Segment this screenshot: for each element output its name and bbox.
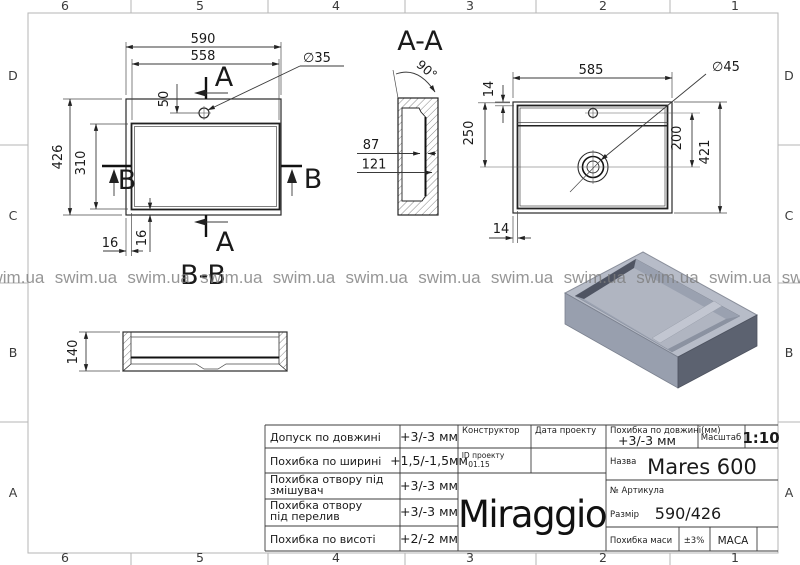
zone-row-label: D	[8, 68, 18, 83]
dim-bottom-drain-dia: ∅45	[712, 60, 740, 75]
mass-label: МАСА	[718, 535, 750, 547]
tolerance-label: під перелив	[270, 510, 340, 523]
section-bb-view: B-B 140	[66, 260, 287, 371]
zone-row-label: A	[9, 485, 18, 500]
section-marker-b-left: B	[118, 165, 137, 196]
section-marker-a-top: A	[215, 62, 234, 93]
drawing-sheet: swim.uaswim.uaswim.uaswim.uaswim.uaswim.…	[0, 0, 800, 565]
dim-bottom-width: 585	[579, 63, 604, 78]
section-aa-view: A-A 90° 87 121	[357, 26, 443, 215]
zone-col-label: 4	[332, 0, 340, 13]
brand-logo: Miraggio	[458, 493, 606, 536]
zone-row-label: C	[785, 208, 794, 223]
dim-bottom-drain-offset: 250	[462, 121, 477, 146]
dim-bb-height: 140	[66, 340, 81, 365]
zone-row-label: D	[784, 68, 794, 83]
dim-aa-121: 121	[362, 158, 387, 173]
tolerance-label: Похибка по висоті	[270, 533, 376, 546]
dim-bottom-rim-top: 14	[482, 81, 497, 98]
zone-col-label: 1	[731, 550, 739, 565]
zone-col-label: 6	[61, 550, 69, 565]
project-id-value: 01.15	[468, 460, 490, 469]
tolerance-label: Допуск по довжині	[270, 431, 381, 444]
size-value: 590/426	[655, 504, 721, 523]
dim-plan-inner-height: 310	[74, 151, 89, 176]
section-marker-b-right: B	[304, 164, 323, 195]
dim-aa-87: 87	[363, 138, 380, 153]
tolerance-value: +1,5/-1,5мм	[390, 453, 468, 468]
zone-col-label: 3	[466, 0, 474, 13]
zone-col-label: 2	[599, 550, 607, 565]
tolerance-value: +3/-3 мм	[400, 429, 458, 444]
zone-col-label: 6	[61, 0, 69, 13]
zone-row-label: A	[785, 485, 794, 500]
dim-plan-inner-width: 558	[191, 49, 216, 64]
dim-bottom-overall-height: 421	[698, 140, 713, 165]
zone-col-label: 2	[599, 0, 607, 13]
drawing-canvas: 6 5 4 3 2 1 6 5 4 3 2 1 D C B A D C B A	[0, 0, 800, 565]
bottom-view: ∅45 585 14 250 200 421	[462, 60, 740, 243]
project-id-label: ID проекту	[462, 451, 505, 460]
size-label: Размір	[610, 510, 639, 520]
zone-row-label: B	[9, 345, 18, 360]
zone-col-label: 4	[332, 550, 340, 565]
zone-col-label: 3	[466, 550, 474, 565]
tolerance-value: +3/-3 мм	[400, 504, 458, 519]
section-bb-title: B-B	[180, 260, 226, 291]
dim-aa-angle: 90°	[414, 57, 441, 83]
product-name: Mares 600	[647, 455, 757, 479]
zone-row-label: B	[785, 345, 794, 360]
mass-tolerance-label: Похибка маси	[610, 536, 672, 546]
section-marker-a-bottom: A	[216, 227, 235, 258]
dim-plan-offset-h: 16	[102, 236, 119, 251]
plan-view: 590 558 ∅35 50 426 310	[51, 32, 344, 258]
zone-col-label: 5	[196, 550, 204, 565]
dim-bottom-hole-to-drain: 200	[670, 126, 685, 151]
length-tolerance-value: +3/-3 мм	[618, 433, 676, 448]
zone-col-label: 5	[196, 0, 204, 13]
dim-plan-overall-height: 426	[51, 145, 66, 170]
dim-plan-overall-width: 590	[191, 32, 216, 47]
dim-bottom-rim-side: 14	[493, 222, 510, 237]
tolerance-value: +2/-2 мм	[400, 531, 458, 546]
scale-value: 1:10	[742, 429, 779, 447]
tolerance-label: змішувач	[270, 484, 324, 497]
date-label: Дата проекту	[535, 426, 596, 436]
article-label: № Артикула	[610, 486, 664, 496]
zone-col-label: 1	[731, 0, 739, 13]
zone-row-label: C	[9, 208, 18, 223]
dim-plan-hole-diameter: ∅35	[303, 51, 331, 66]
dim-plan-offset-v: 16	[135, 230, 150, 247]
tolerance-label: Похибка по ширині	[270, 455, 381, 468]
constructor-label: Конструктор	[462, 426, 520, 436]
iso-3d-view	[565, 252, 757, 388]
dim-plan-hole-offset: 50	[157, 91, 172, 108]
section-aa-title: A-A	[397, 26, 443, 57]
mass-tolerance-value: ±3%	[684, 536, 705, 546]
tolerance-value: +3/-3 мм	[400, 478, 458, 493]
scale-label: Масштаб	[701, 433, 741, 443]
title-block: Допуск по довжині +3/-3 мм Похибка по ши…	[265, 425, 780, 551]
name-label: Назва	[610, 457, 636, 467]
